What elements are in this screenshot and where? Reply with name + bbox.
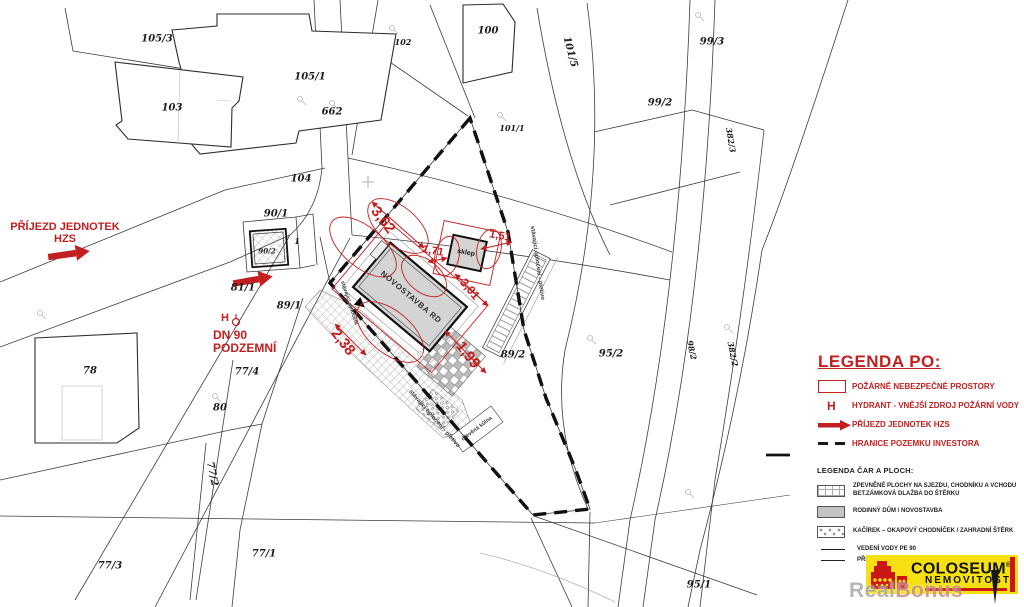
- legend-po-item: PŘÍJEZD JEDNOTEK HZS: [852, 420, 950, 429]
- site-plan: 105/3105/1103662104102100101/5101/199/39…: [0, 0, 1024, 607]
- legend-po-row-hydrant: H HYDRANT - VNĚJŠÍ ZDROJ POŽÁRNÍ VODY: [818, 396, 1024, 415]
- realbonus-watermark: RealBonus: [849, 579, 963, 603]
- legend-po-item: HYDRANT - VNĚJŠÍ ZDROJ POŽÁRNÍ VODY: [852, 401, 1019, 410]
- legend-po-row-hazard: POŽÁRNĚ NEBEZPEČNÉ PROSTORY: [818, 377, 1024, 396]
- legend-po-item: POŽÁRNĚ NEBEZPEČNÉ PROSTORY: [852, 382, 995, 391]
- legend-cp-row-pebbles: KAČÍREK – OKAPOVÝ CHODNÍČEK / ZAHRADNÍ Š…: [817, 526, 1024, 538]
- legend-cp-item-line1: ZPEVNĚNÉ PLOCHY NA SJEZDU, CHODNÍKU A VC…: [853, 483, 1016, 491]
- legend-cp-item: KAČÍREK – OKAPOVÝ CHODNÍČEK / ZAHRADNÍ Š…: [853, 528, 1013, 536]
- hydrant-letter: H: [221, 312, 229, 324]
- legend-cp-row-house: RODINNÝ DŮM / NOVOSTAVBA: [817, 506, 1024, 518]
- watermark-part1: Real: [849, 579, 895, 602]
- legend-cp-item: ZPEVNĚNÉ PLOCHY NA SJEZDU, CHODNÍKU A VC…: [853, 483, 1016, 498]
- legend-po-row-boundary: HRANICE POZEMKU INVESTORA: [818, 434, 1024, 453]
- hazard-box-icon: [818, 380, 852, 393]
- red-arrow-icon: [818, 419, 852, 431]
- water-main-note: DN 90 PODZEMNÍ: [213, 329, 276, 355]
- legend-po-item: HRANICE POZEMKU INVESTORA: [852, 439, 979, 448]
- hzs-access-note-line2: HZS: [10, 233, 120, 245]
- line-swatch-icon: [821, 549, 845, 550]
- logo-spike-icon: [988, 568, 1002, 606]
- pavers-swatch-icon: [817, 485, 845, 497]
- dashed-line-icon: [818, 442, 852, 446]
- hzs-access-note-line1: PŘÍJEZD JEDNOTEK: [10, 221, 120, 233]
- survey-cross-icon: [362, 176, 374, 188]
- hzs-access-note: PŘÍJEZD JEDNOTEK HZS: [10, 221, 120, 245]
- watermark-part2: Bonus: [895, 579, 963, 602]
- gray-swatch-icon: [817, 506, 845, 518]
- legend-po-title: LEGENDA PO:: [818, 352, 1024, 372]
- legend-cp-row-water-main: VEDENÍ VODY PE 90: [817, 546, 1024, 554]
- legend-cp-row-paving: ZPEVNĚNÉ PLOCHY NA SJEZDU, CHODNÍKU A VC…: [817, 483, 1024, 498]
- legend-cp-item: VEDENÍ VODY PE 90: [857, 546, 916, 554]
- legend-cp-item: RODINNÝ DŮM / NOVOSTAVBA: [853, 508, 942, 516]
- legend-po: LEGENDA PO: POŽÁRNĚ NEBEZPEČNÉ PROSTORY …: [818, 352, 1024, 453]
- hydrant-letter-icon: H: [818, 399, 852, 413]
- hzs-arrow-west: [47, 243, 91, 265]
- logo-red-bar: [1010, 557, 1015, 592]
- water-main-note-line2: PODZEMNÍ: [213, 342, 276, 355]
- outbuilding-90-2: [250, 229, 288, 267]
- hydrant-symbol: H: [827, 399, 836, 413]
- line-swatch-icon: [821, 560, 845, 561]
- legend-cp-item-line2: BET.ZÁMKOVÁ DLAŽBA DO ŠTĚRKU: [853, 491, 1016, 499]
- legend-po-row-access: PŘÍJEZD JEDNOTEK HZS: [818, 415, 1024, 434]
- pebbles-swatch-icon: [817, 526, 845, 538]
- hydrant-icon: [233, 314, 240, 326]
- legend-cp-title: LEGENDA ČAR A PLOCH:: [817, 466, 1024, 475]
